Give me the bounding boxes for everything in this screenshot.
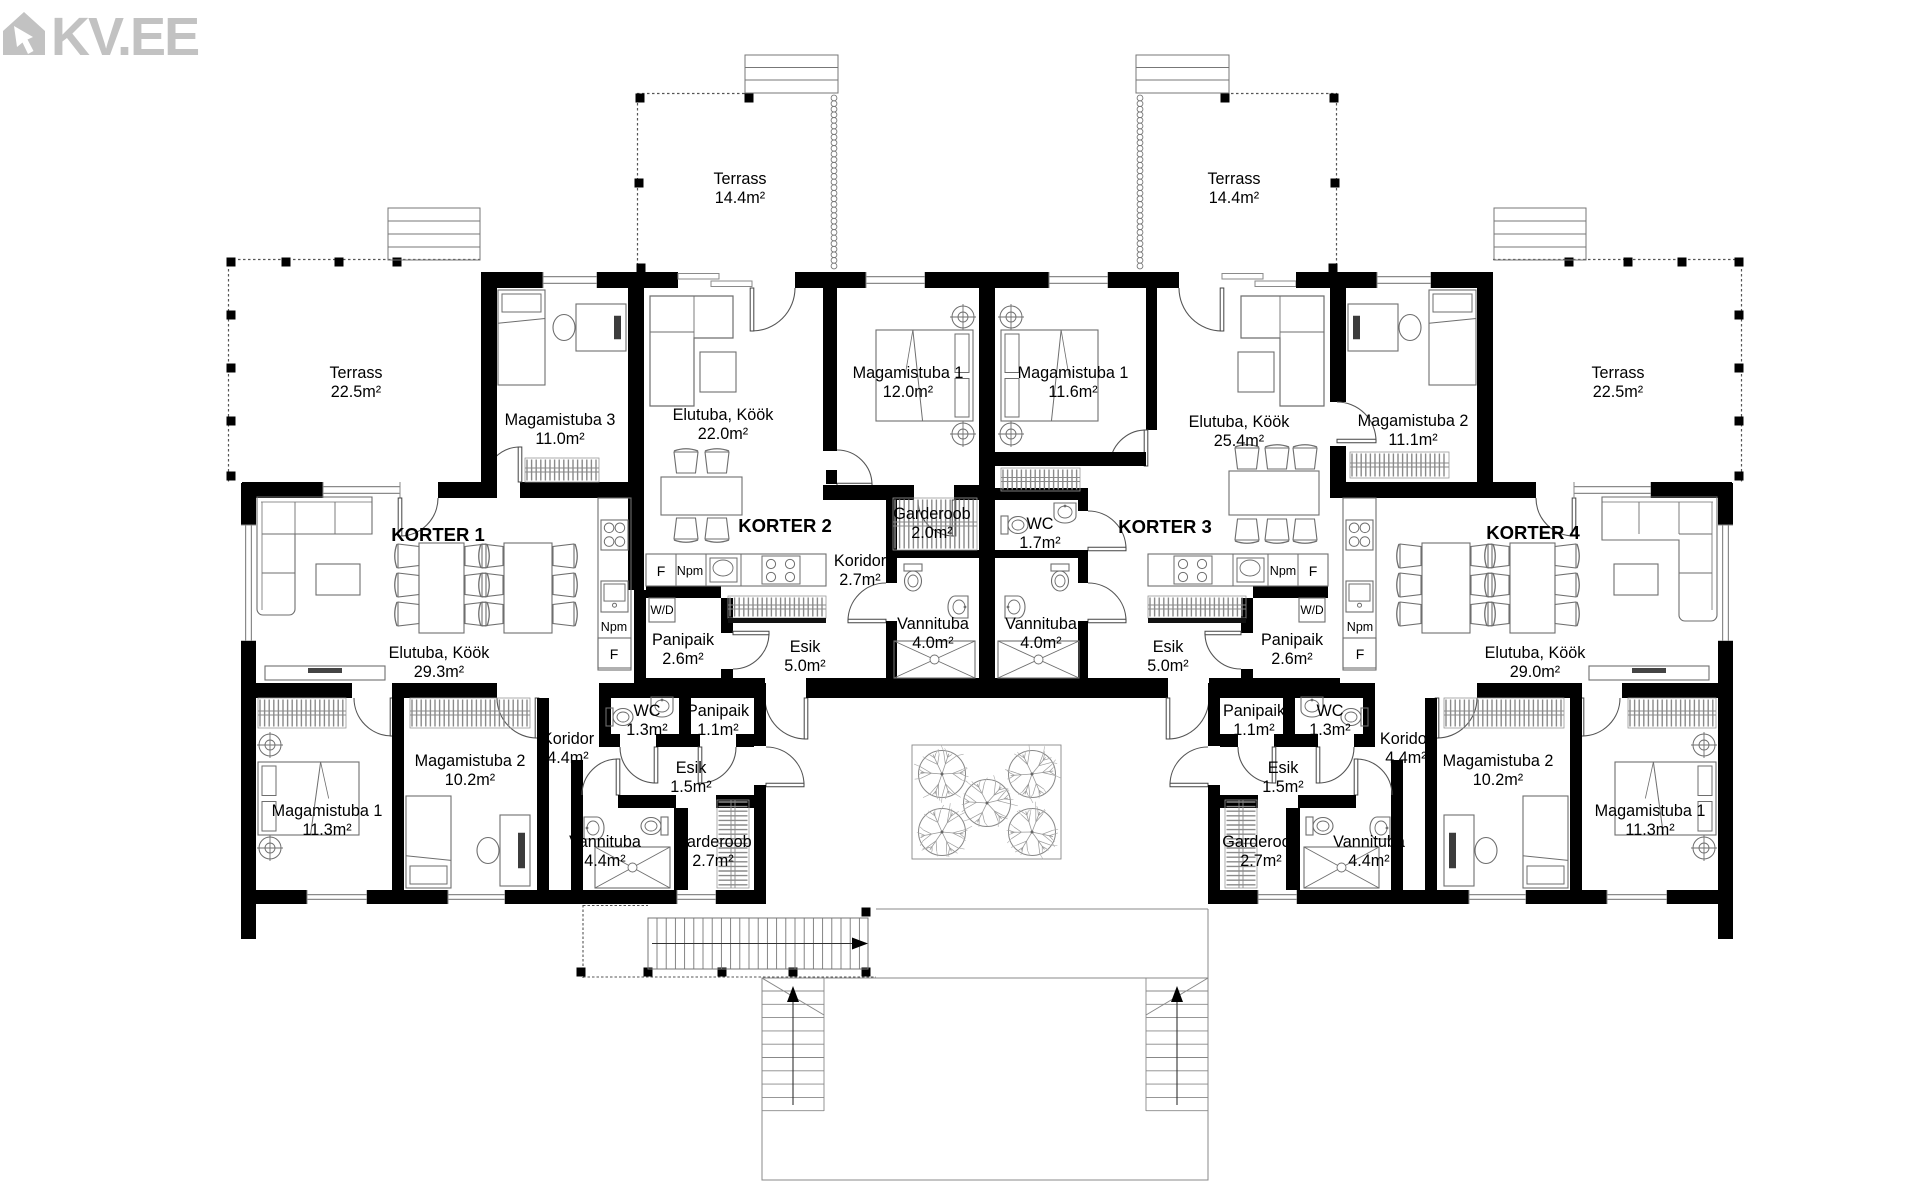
svg-text:Elutuba, Köök: Elutuba, Köök <box>1485 644 1587 662</box>
svg-text:1.3m²: 1.3m² <box>1309 721 1351 739</box>
svg-text:Elutuba, Köök: Elutuba, Köök <box>673 406 775 424</box>
svg-text:1.7m²: 1.7m² <box>1019 534 1061 552</box>
svg-text:Panipaik: Panipaik <box>652 631 715 649</box>
svg-text:22.5m²: 22.5m² <box>1593 383 1644 401</box>
svg-text:F: F <box>610 646 619 662</box>
svg-text:1.1m²: 1.1m² <box>1233 721 1275 739</box>
svg-text:Vannituba: Vannituba <box>1005 615 1077 633</box>
svg-text:25.4m²: 25.4m² <box>1214 432 1265 450</box>
svg-text:WC: WC <box>634 702 661 720</box>
svg-text:F: F <box>1356 646 1365 662</box>
svg-text:Esik: Esik <box>790 638 821 656</box>
svg-text:5.0m²: 5.0m² <box>1147 657 1189 675</box>
svg-text:Panipaik: Panipaik <box>1261 631 1324 649</box>
svg-text:29.0m²: 29.0m² <box>1510 663 1561 681</box>
svg-text:Terrass: Terrass <box>329 364 382 382</box>
svg-text:4.4m²: 4.4m² <box>547 749 589 767</box>
svg-text:4.4m²: 4.4m² <box>584 852 626 870</box>
svg-text:Npm: Npm <box>601 620 627 634</box>
svg-text:Terrass: Terrass <box>713 170 766 188</box>
svg-text:KORTER 3: KORTER 3 <box>1118 516 1212 537</box>
svg-text:1.5m²: 1.5m² <box>1262 778 1304 796</box>
svg-text:KORTER 4: KORTER 4 <box>1486 522 1580 543</box>
svg-text:22.0m²: 22.0m² <box>698 425 749 443</box>
svg-text:2.7m²: 2.7m² <box>839 571 881 589</box>
svg-text:5.0m²: 5.0m² <box>784 657 826 675</box>
svg-text:12.0m²: 12.0m² <box>883 383 934 401</box>
svg-text:Vannituba: Vannituba <box>569 833 641 851</box>
svg-text:WC: WC <box>1027 515 1054 533</box>
svg-text:Terrass: Terrass <box>1207 170 1260 188</box>
svg-text:F: F <box>657 563 666 579</box>
svg-text:11.0m²: 11.0m² <box>535 430 585 448</box>
svg-text:14.4m²: 14.4m² <box>715 189 766 207</box>
svg-text:22.5m²: 22.5m² <box>331 383 382 401</box>
svg-text:Npm: Npm <box>1347 620 1373 634</box>
svg-text:4.4m²: 4.4m² <box>1385 749 1427 767</box>
svg-text:KORTER 1: KORTER 1 <box>391 524 485 545</box>
svg-text:10.2m²: 10.2m² <box>1473 771 1524 789</box>
svg-text:Garderoob: Garderoob <box>674 833 751 851</box>
svg-text:F: F <box>1309 563 1318 579</box>
svg-text:Garderoob: Garderoob <box>893 505 970 523</box>
svg-text:Magamistuba 2: Magamistuba 2 <box>1358 412 1469 430</box>
svg-text:WC: WC <box>1317 702 1344 720</box>
svg-text:Magamistuba 1: Magamistuba 1 <box>853 364 964 382</box>
svg-text:11.1m²: 11.1m² <box>1388 431 1438 449</box>
svg-text:4.0m²: 4.0m² <box>912 634 954 652</box>
svg-text:1.5m²: 1.5m² <box>670 778 712 796</box>
svg-text:10.2m²: 10.2m² <box>445 771 496 789</box>
svg-text:11.3m²: 11.3m² <box>302 821 352 839</box>
svg-text:2.7m²: 2.7m² <box>692 852 734 870</box>
svg-text:Elutuba, Köök: Elutuba, Köök <box>1189 413 1291 431</box>
svg-text:14.4m²: 14.4m² <box>1209 189 1260 207</box>
svg-text:W/D: W/D <box>650 603 674 617</box>
svg-text:Npm: Npm <box>1270 564 1296 578</box>
svg-text:Magamistuba 2: Magamistuba 2 <box>415 752 526 770</box>
svg-text:Koridor: Koridor <box>834 552 887 570</box>
svg-text:Magamistuba 2: Magamistuba 2 <box>1443 752 1554 770</box>
svg-text:KV.EE: KV.EE <box>51 7 198 67</box>
svg-text:Esik: Esik <box>1153 638 1184 656</box>
svg-text:Esik: Esik <box>1268 759 1299 777</box>
svg-text:2.6m²: 2.6m² <box>662 650 704 668</box>
svg-text:Esik: Esik <box>676 759 707 777</box>
svg-text:Vannituba: Vannituba <box>897 615 969 633</box>
svg-text:Koridor: Koridor <box>1380 730 1433 748</box>
svg-text:Terrass: Terrass <box>1591 364 1644 382</box>
svg-text:Panipaik: Panipaik <box>1223 702 1286 720</box>
svg-text:11.3m²: 11.3m² <box>1625 821 1675 839</box>
svg-text:KORTER 2: KORTER 2 <box>738 515 832 536</box>
svg-text:W/D: W/D <box>1300 603 1324 617</box>
svg-text:Elutuba, Köök: Elutuba, Köök <box>389 644 491 662</box>
svg-text:29.3m²: 29.3m² <box>414 663 465 681</box>
svg-text:4.4m²: 4.4m² <box>1348 852 1390 870</box>
svg-text:1.3m²: 1.3m² <box>626 721 668 739</box>
svg-text:Garderoob: Garderoob <box>1222 833 1299 851</box>
svg-text:Npm: Npm <box>677 564 703 578</box>
svg-text:2.0m²: 2.0m² <box>911 524 953 542</box>
svg-text:1.1m²: 1.1m² <box>697 721 739 739</box>
svg-text:Vannituba: Vannituba <box>1333 833 1405 851</box>
svg-text:Magamistuba 1: Magamistuba 1 <box>1018 364 1129 382</box>
svg-text:11.6m²: 11.6m² <box>1048 383 1098 401</box>
svg-text:Magamistuba 3: Magamistuba 3 <box>505 411 616 429</box>
svg-text:Magamistuba 1: Magamistuba 1 <box>1595 802 1706 820</box>
svg-text:2.7m²: 2.7m² <box>1240 852 1282 870</box>
svg-text:Panipaik: Panipaik <box>687 702 750 720</box>
svg-text:4.0m²: 4.0m² <box>1020 634 1062 652</box>
svg-text:Koridor: Koridor <box>542 730 595 748</box>
svg-text:2.6m²: 2.6m² <box>1271 650 1313 668</box>
svg-text:Magamistuba 1: Magamistuba 1 <box>272 802 383 820</box>
